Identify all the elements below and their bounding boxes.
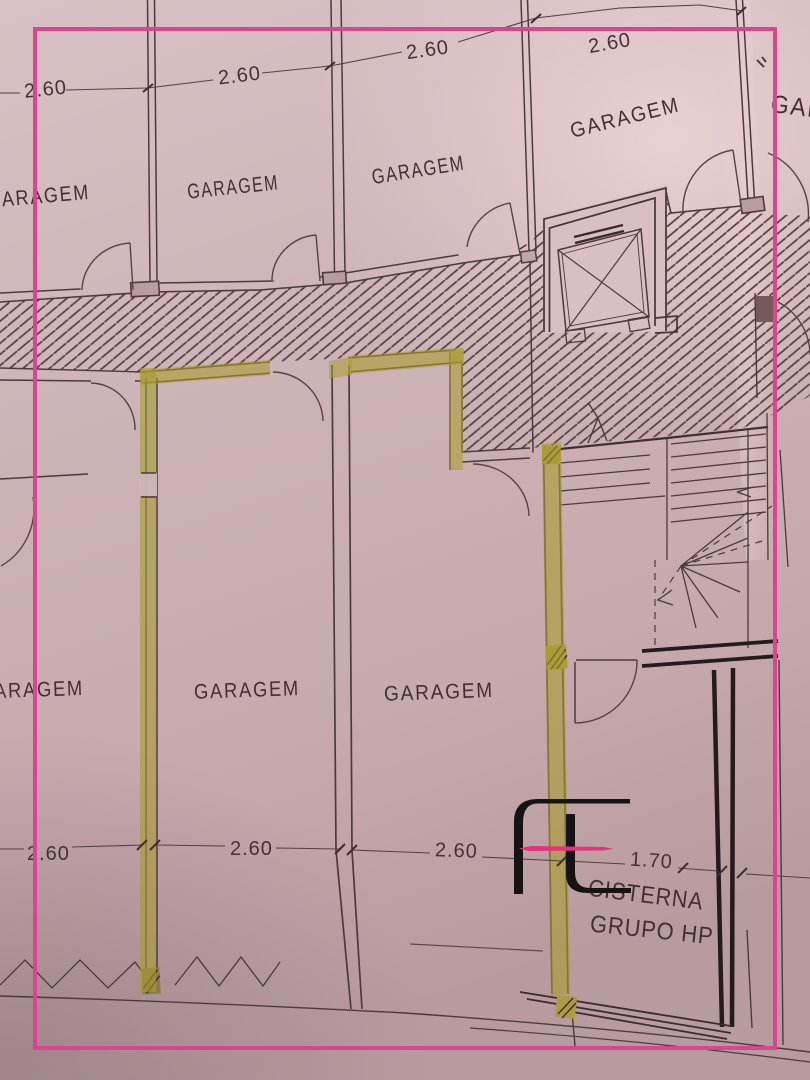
svg-text:2.60: 2.60	[23, 76, 68, 102]
svg-text:GARAGEM: GARAGEM	[0, 677, 84, 704]
svg-text:1.70: 1.70	[629, 848, 673, 873]
svg-text:GARAGEM: GARAGEM	[384, 679, 495, 706]
svg-text:GARAGEM: GARAGEM	[194, 677, 301, 704]
svg-text:2.60: 2.60	[230, 838, 273, 860]
svg-text:2.60: 2.60	[435, 839, 479, 862]
